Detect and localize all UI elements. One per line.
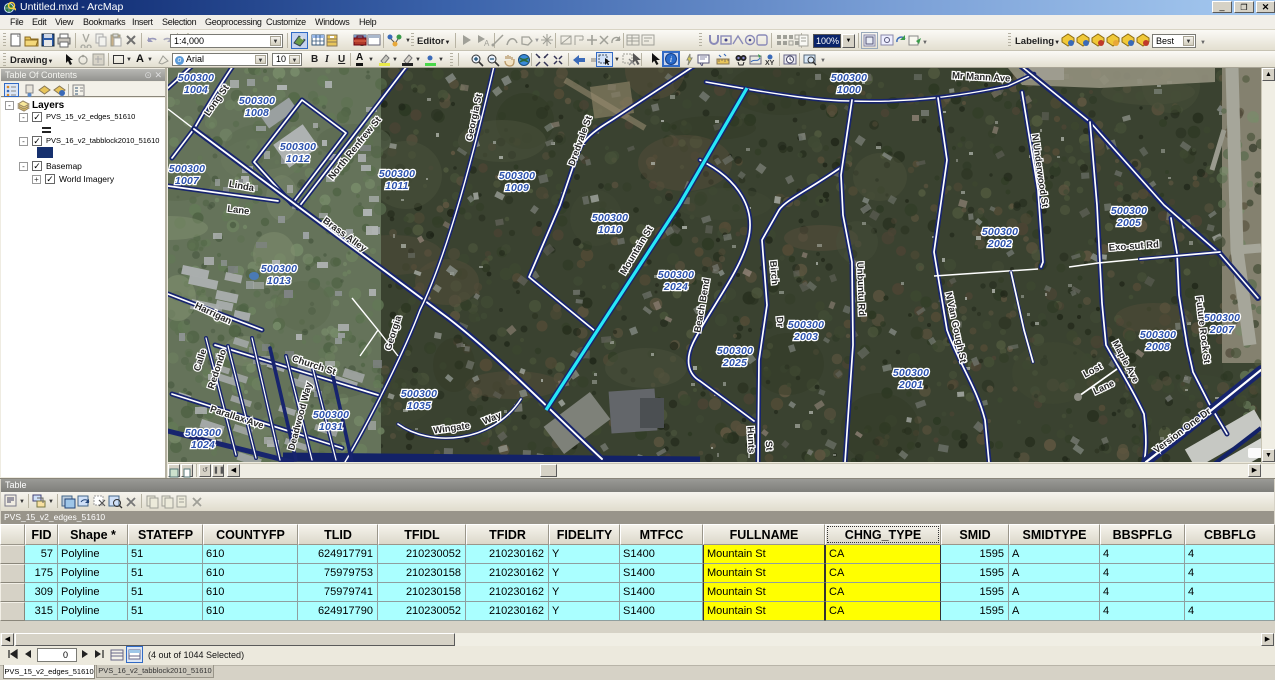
svg-text:Birch: Birch — [767, 260, 780, 285]
svg-text:Unbuntu Rd: Unbuntu Rd — [854, 262, 867, 317]
svg-text:Hunts: Hunts — [744, 426, 756, 453]
svg-text:XY: XY — [765, 60, 775, 66]
svg-text:St: St — [763, 441, 775, 452]
svg-text:i: i — [670, 55, 672, 64]
svg-text:A: A — [484, 39, 490, 48]
svg-text:Dr: Dr — [774, 316, 786, 328]
